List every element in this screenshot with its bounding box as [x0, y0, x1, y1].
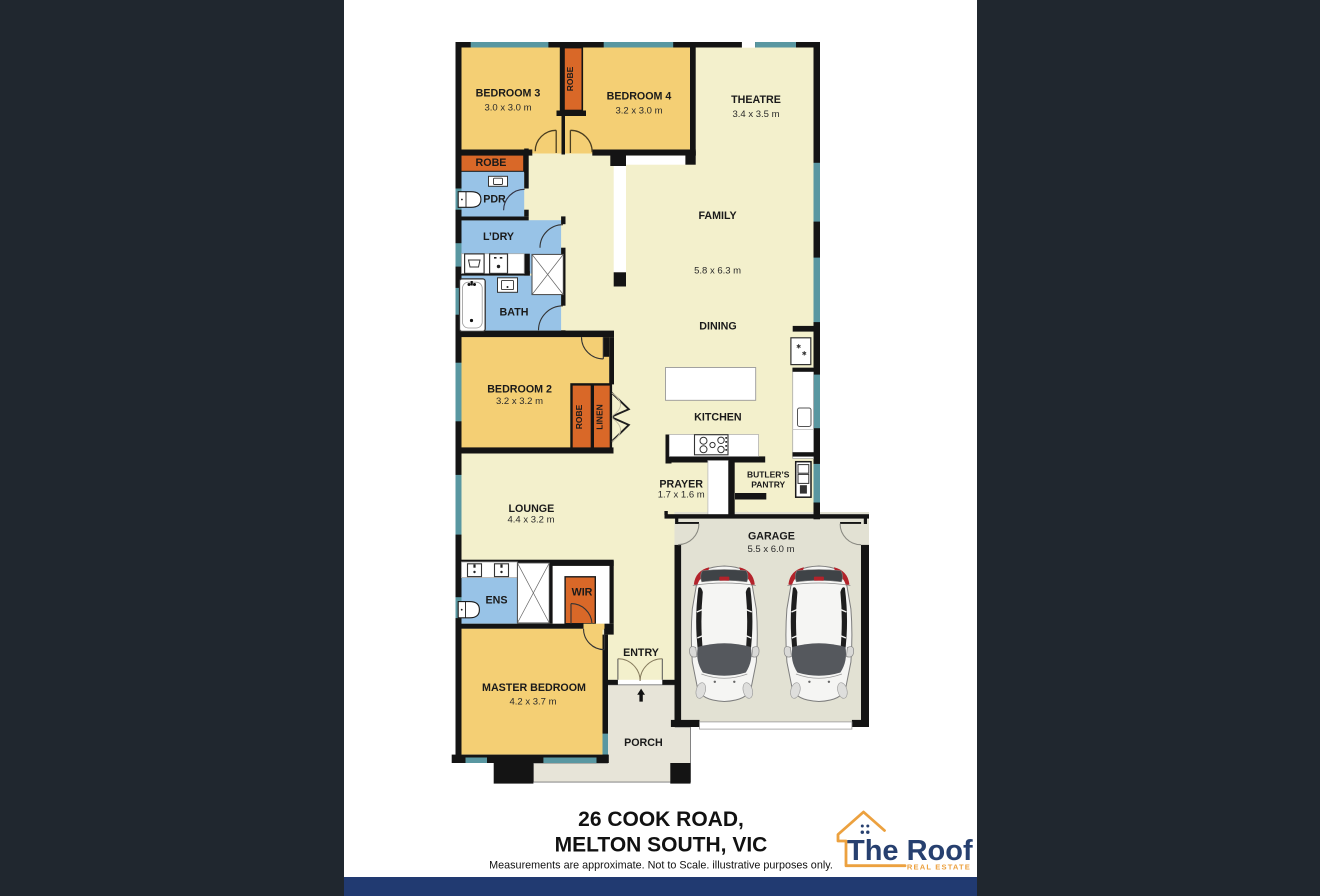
- svg-text:26 COOK ROAD,: 26 COOK ROAD,: [578, 808, 744, 831]
- svg-text:LOUNGE: LOUNGE: [509, 503, 555, 515]
- svg-text:ROBE: ROBE: [565, 66, 575, 91]
- svg-text:FAMILY: FAMILY: [698, 210, 736, 222]
- svg-text:MELTON SOUTH, VIC: MELTON SOUTH, VIC: [555, 834, 768, 857]
- svg-text:1.7 x 1.6 m: 1.7 x 1.6 m: [658, 490, 705, 501]
- svg-text:5.5 x 6.0 m: 5.5 x 6.0 m: [748, 544, 795, 555]
- svg-text:DINING: DINING: [699, 321, 736, 333]
- svg-text:BUTLER’S: BUTLER’S: [747, 470, 790, 480]
- svg-text:KITCHEN: KITCHEN: [694, 412, 742, 424]
- svg-text:3.2 x 3.0 m: 3.2 x 3.0 m: [616, 106, 663, 117]
- svg-text:ENTRY: ENTRY: [623, 647, 659, 659]
- svg-text:3.0 x 3.0 m: 3.0 x 3.0 m: [485, 103, 532, 114]
- svg-text:Measurements are approximate.: Measurements are approximate. Not to Sca…: [489, 860, 833, 872]
- svg-text:3.2 x 3.2 m: 3.2 x 3.2 m: [496, 396, 543, 407]
- svg-text:ENS: ENS: [486, 595, 508, 607]
- svg-text:LINEN: LINEN: [594, 404, 604, 430]
- svg-text:GARAGE: GARAGE: [748, 531, 795, 543]
- svg-text:PANTRY: PANTRY: [751, 480, 785, 490]
- svg-text:ROBE: ROBE: [574, 404, 584, 429]
- svg-text:THEATRE: THEATRE: [731, 94, 781, 106]
- svg-text:5.8 x 6.3 m: 5.8 x 6.3 m: [694, 266, 741, 277]
- svg-text:✱: ✱: [796, 344, 801, 351]
- svg-text:WIR: WIR: [572, 587, 593, 599]
- svg-text:3.4 x 3.5 m: 3.4 x 3.5 m: [733, 109, 780, 120]
- svg-text:4.4 x 3.2 m: 4.4 x 3.2 m: [508, 515, 555, 526]
- svg-text:L’DRY: L’DRY: [483, 231, 514, 243]
- svg-text:PORCH: PORCH: [624, 737, 663, 749]
- svg-text:4.2 x 3.7 m: 4.2 x 3.7 m: [510, 697, 557, 708]
- svg-text:PDR: PDR: [483, 194, 506, 206]
- svg-text:✱: ✱: [802, 351, 807, 358]
- svg-text:BEDROOM 4: BEDROOM 4: [607, 91, 672, 103]
- svg-text:MASTER BEDROOM: MASTER BEDROOM: [482, 682, 586, 694]
- svg-text:BEDROOM 2: BEDROOM 2: [487, 384, 552, 396]
- svg-text:BATH: BATH: [500, 307, 529, 319]
- svg-text:REAL ESTATE: REAL ESTATE: [907, 863, 971, 872]
- svg-text:ROBE: ROBE: [476, 157, 507, 169]
- svg-text:BEDROOM 3: BEDROOM 3: [476, 88, 541, 100]
